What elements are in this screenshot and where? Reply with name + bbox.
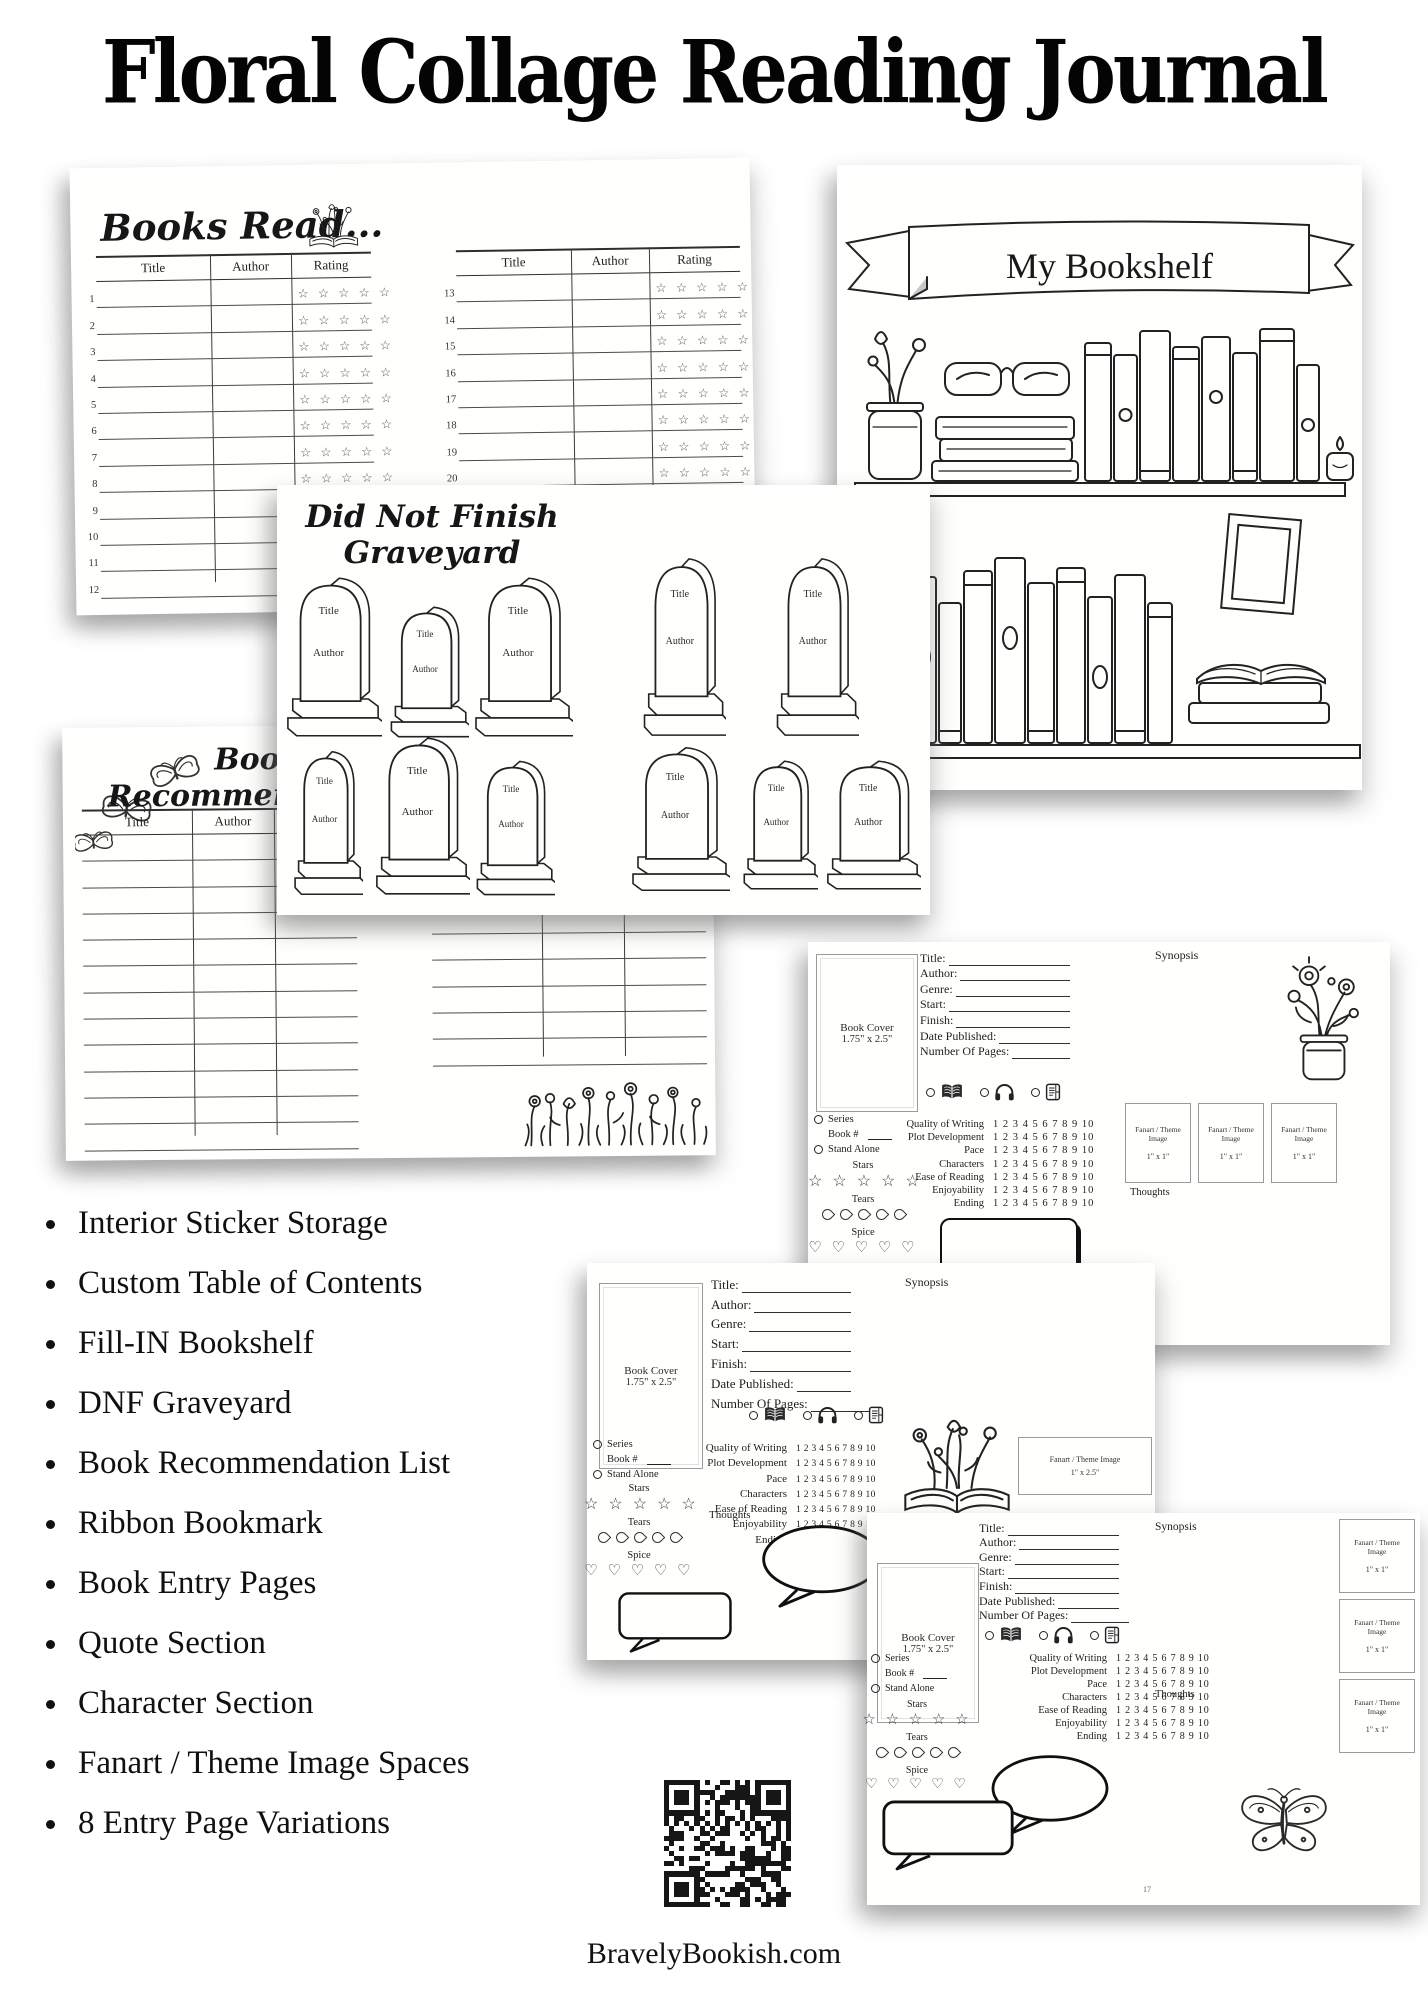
rating-label: Enjoyability [812,1185,993,1196]
qr-code [664,1780,791,1907]
column-header: Title [82,814,192,831]
speech-bubble [605,1591,745,1653]
rating-scale: 1 2 3 4 5 6 7 8 9 10 [993,1172,1094,1183]
field-line [1008,1524,1119,1536]
rating-row: Pace1 2 3 4 5 6 7 8 9 10 [615,1473,876,1488]
bookshelf-banner-label: My Bookshelf [912,245,1307,287]
entry-field: Title: [920,950,1070,966]
format-radio [926,1088,935,1097]
spice-row: ♡ ♡ ♡ ♡ ♡ [862,1776,972,1793]
entry-field: Title: [711,1273,851,1293]
rating-stars: ☆ ☆ ☆ ☆ ☆ [299,391,369,408]
thoughts-label: Thoughts [709,1509,751,1521]
rating-label: Plot Development [935,1666,1116,1677]
rating-label: Quality of Writing [935,1653,1116,1664]
field-label: Start: [979,1564,1005,1579]
rating-stars: ☆ ☆ ☆ ☆ ☆ [656,306,737,323]
field-line [742,1278,851,1293]
speech-bubble [881,1799,1015,1871]
column-header: Title [456,254,571,272]
rating-label: Pace [935,1679,1116,1690]
fanart-image-box: Fanart / Theme Image1" x 1" [1339,1519,1415,1593]
tombstone-title-label: Title [483,605,553,617]
row-number: 2 [80,321,95,332]
entry-field: Author: [711,1293,851,1313]
field-line [956,1016,1070,1028]
butterfly-art [1233,1771,1335,1871]
format-icons [985,1626,1120,1644]
fanart-label: Fanart / Theme Image [1346,1538,1409,1556]
series-label: Series [885,1653,909,1664]
book-cover-label: Book Cover [624,1365,677,1377]
entry-field: Date Published: [979,1594,1119,1609]
rating-row: Ending1 2 3 4 5 6 7 8 9 10 [812,1198,1094,1211]
table-row [84,1070,358,1099]
tombstone-icon [775,553,859,741]
stand-alone-label: Stand Alone [885,1683,934,1694]
table-row [85,1123,359,1152]
field-line [999,1031,1070,1043]
entry-field: Date Published: [920,1028,1070,1044]
stand-alone-radio [871,1684,880,1693]
rating-scale: 1 2 3 4 5 6 7 8 9 10 [796,1444,876,1454]
series-radio [593,1440,602,1449]
format-radio [1039,1631,1048,1640]
rating-scale: 1 2 3 4 5 6 7 8 9 10 [1116,1666,1210,1677]
fanart-image-box: Fanart / Theme Image1" x 2.5" [1018,1437,1152,1495]
thoughts-label: Thoughts [1130,1187,1170,1198]
table-row [432,985,706,1014]
field-label: Start: [711,1336,739,1352]
rating-label: Ease of Reading [812,1172,993,1183]
format-option [1090,1626,1120,1644]
entry-page-number: 17 [1143,1885,1151,1894]
entry-field: Author: [979,1536,1119,1551]
tombstone-author-label: Author [300,814,349,824]
table-row [84,1096,358,1125]
rating-label: Characters [812,1159,993,1170]
fanart-label: Fanart / Theme Image [1346,1698,1409,1716]
field-label: Author: [979,1535,1016,1550]
rating-scale: 1 2 3 4 5 6 7 8 9 10 [1116,1718,1210,1729]
tombstone-title-label: Title [783,589,842,600]
field-line [750,1357,851,1372]
field-line [949,953,1070,965]
rating-row: Ease of Reading1 2 3 4 5 6 7 8 9 10 [812,1172,1094,1185]
row-number: 7 [82,453,97,464]
column-header: Rating [649,251,740,268]
tear-drop-icon [595,1530,611,1546]
fanart-size: 1" x 1" [1147,1152,1170,1161]
field-label: Finish: [920,1013,953,1028]
fanart-label: Fanart / Theme Image [1131,1125,1185,1143]
rating-stars: ☆ ☆ ☆ ☆ ☆ [299,364,369,381]
format-option [1039,1626,1074,1644]
table-row [433,1011,707,1040]
field-line [754,1297,851,1312]
row-number: 14 [440,315,455,326]
field-line [1012,1047,1070,1059]
format-icons [749,1406,884,1424]
format-option [854,1406,884,1424]
rating-scale: 1 2 3 4 5 6 7 8 9 10 [993,1119,1094,1130]
graveyard-title-line1: Did Not Finish [277,499,587,535]
column-header: Author [571,252,649,269]
row-number: 11 [84,558,99,569]
entry-field: Date Published: [711,1372,851,1392]
field-label: Date Published: [979,1594,1055,1609]
tear-drop-icon [945,1745,961,1761]
ebook-icon [1104,1626,1120,1644]
rating-stars: ☆ ☆ ☆ ☆ ☆ [656,332,737,349]
entry-field: Genre: [920,981,1070,997]
entry-fields: Title:Author:Genre:Start:Finish:Date Pub… [920,950,1070,1059]
spice-label: Spice [808,1227,918,1238]
rating-label: Quality of Writing [812,1119,993,1130]
field-line [797,1377,851,1392]
format-option [926,1083,964,1101]
field-label: Genre: [711,1316,746,1332]
entry-art [1260,944,1386,1084]
tear-drop-icon [909,1745,925,1761]
feature-item: Character Section [38,1686,598,1721]
flower-bouquet-icon [1260,944,1386,1084]
speech-bubble-icon [881,1799,1015,1871]
field-label: Genre: [920,982,953,997]
entry-field: Start: [711,1332,851,1352]
rating-label: Pace [615,1473,796,1485]
field-line [960,969,1070,981]
audiobook-icon [1053,1626,1074,1644]
fanart-size: 1" x 1" [1366,1645,1389,1654]
fanart-size: 1" x 2.5" [1071,1468,1100,1477]
field-label: Finish: [711,1356,747,1372]
format-radio [749,1411,758,1420]
tear-drop-icon [873,1745,889,1761]
table-row [83,965,357,994]
tombstone-title-label: Title [300,776,349,786]
feature-item: Ribbon Bookmark [38,1506,598,1541]
fanart-label: Fanart / Theme Image [1204,1125,1258,1143]
tombstone-author-label: Author [384,806,451,818]
format-icons [926,1083,1061,1101]
fanart-size: 1" x 1" [1366,1725,1389,1734]
rating-label: Plot Development [615,1457,796,1469]
physical-book-icon [940,1083,964,1101]
row-number: 17 [441,394,456,405]
format-option [980,1083,1015,1101]
rating-row: Enjoyability1 2 3 4 5 6 7 8 9 10 [935,1718,1210,1731]
field-line [742,1337,851,1352]
qr-module [786,1902,791,1907]
feature-item: 8 Entry Page Variations [38,1806,598,1841]
tombstone-title-label: Title [650,589,709,600]
fanart-size: 1" x 1" [1220,1152,1243,1161]
rating-label: Enjoyability [935,1718,1116,1729]
spice-label: Spice [862,1765,972,1776]
feature-list: Interior Sticker StorageCustom Table of … [38,1206,598,1866]
tombstone-title-label: Title [640,772,710,783]
rating-row: Ending1 2 3 4 5 6 7 8 9 10 [935,1731,1210,1744]
thoughts-label: Thoughts [1155,1689,1195,1700]
entry-field: Start: [920,997,1070,1013]
field-line [949,1000,1070,1012]
row-number: 16 [441,368,456,379]
table-row [84,1044,358,1073]
fanart-label: Fanart / Theme Image [1277,1125,1331,1143]
tombstone-author-label: Author [483,647,553,659]
audiobook-icon [817,1406,838,1424]
table-row [84,1017,358,1046]
ratings-block: Quality of Writing1 2 3 4 5 6 7 8 9 10Pl… [812,1119,1094,1211]
entry-fields: Title:Author:Genre:Start:Finish:Date Pub… [979,1521,1119,1623]
field-line [1071,1612,1129,1624]
table-row [432,959,706,988]
entry-field: Finish: [711,1352,851,1372]
rating-stars: ☆ ☆ ☆ ☆ ☆ [655,279,736,296]
format-radio [985,1631,994,1640]
tombstone-author-label: Author [483,819,539,829]
synopsis-label: Synopsis [1155,948,1198,963]
stand-alone-radio [593,1470,602,1479]
field-line [1008,1568,1119,1580]
tombstone-title-label: Title [397,629,453,639]
format-radio [1090,1631,1099,1640]
rating-stars: ☆ ☆ ☆ ☆ ☆ [658,438,739,455]
field-line [1058,1597,1119,1609]
field-line [1015,1553,1119,1565]
tombstone: TitleAuthor [473,573,573,741]
tombstone-author-label: Author [640,810,710,821]
book-number-label: Book # [885,1668,914,1679]
rating-stars: ☆ ☆ ☆ ☆ ☆ [657,385,738,402]
format-option [1031,1083,1061,1101]
tombstone: TitleAuthor [630,743,730,895]
row-number: 1 [80,294,95,305]
rating-scale: 1 2 3 4 5 6 7 8 9 10 [993,1132,1094,1143]
rating-stars: ☆ ☆ ☆ ☆ ☆ [298,338,368,355]
format-radio [1031,1088,1040,1097]
wildflowers-icon [517,1052,710,1150]
row-number: 10 [83,532,98,543]
field-label: Number Of Pages: [920,1044,1009,1059]
tear-drop-icon [891,1745,907,1761]
rating-stars: ☆ ☆ ☆ ☆ ☆ [657,411,738,428]
rating-scale: 1 2 3 4 5 6 7 8 9 10 [796,1459,876,1469]
entry-field: Author: [920,966,1070,982]
synopsis-label: Synopsis [1155,1521,1197,1533]
field-line [1015,1582,1119,1594]
tombstone-icon [642,553,726,741]
tombstone: TitleAuthor [642,553,726,741]
fanart-image-box: Fanart / Theme Image1" x 1" [1339,1599,1415,1673]
tombstone-title-label: Title [483,784,539,794]
book-cover-size: 1.75" x 2.5" [626,1377,677,1388]
book-cover-placeholder: Book Cover1.75" x 2.5" [816,954,918,1112]
tears-row [862,1743,972,1763]
rating-scale: 1 2 3 4 5 6 7 8 9 10 [1116,1705,1210,1716]
book-cover-size: 1.75" x 2.5" [842,1034,893,1045]
tombstone: TitleAuthor [293,747,363,899]
series-radio [871,1654,880,1663]
tombstone-author-label: Author [750,817,803,827]
entry-field: Genre: [711,1313,851,1333]
tombstone: TitleAuthor [742,757,818,893]
tombstone-title-label: Title [835,783,902,794]
format-option [803,1406,838,1424]
fanart-image-box: Fanart / Theme Image1" x 1" [1198,1103,1264,1183]
feature-item: DNF Graveyard [38,1386,598,1421]
rating-label: Characters [935,1692,1116,1703]
tombstone: TitleAuthor [389,603,469,741]
rating-row: Enjoyability1 2 3 4 5 6 7 8 9 10 [812,1185,1094,1198]
format-option [985,1626,1023,1644]
tombstone: TitleAuthor [825,757,921,893]
field-label: Date Published: [711,1376,794,1392]
rating-label: Characters [615,1488,796,1500]
rating-scale: 1 2 3 4 5 6 7 8 9 10 [796,1505,876,1515]
row-number: 20 [442,473,457,484]
rating-stars: ☆ ☆ ☆ ☆ ☆ [298,311,368,328]
rating-stars: ☆ ☆ ☆ ☆ ☆ [300,443,370,460]
row-number: 15 [440,342,455,353]
entry-page-3: Book Cover1.75" x 2.5"Title:Author:Genre… [867,1513,1420,1905]
fanart-size: 1" x 1" [1366,1565,1389,1574]
spice-label: Spice [584,1550,694,1561]
field-line [1019,1539,1119,1551]
entry-field: Start: [979,1565,1119,1580]
format-radio [854,1411,863,1420]
rating-label: Pace [812,1145,993,1156]
rating-row: Ease of Reading1 2 3 4 5 6 7 8 9 10 [935,1705,1210,1718]
field-line [749,1317,851,1332]
rating-scale: 1 2 3 4 5 6 7 8 9 10 [993,1159,1094,1170]
tear-drop-icon [927,1745,943,1761]
field-label: Title: [920,951,946,966]
tombstone-title-label: Title [295,605,363,617]
field-line [956,985,1070,997]
entry-field: Finish: [920,1012,1070,1028]
physical-book-icon [763,1406,787,1424]
field-label: Number Of Pages: [979,1608,1068,1623]
wildflowers-icon [517,1052,710,1150]
tombstone: TitleAuthor [475,757,555,899]
rating-label: Plot Development [812,1132,993,1143]
tombstone: TitleAuthor [285,573,382,741]
field-label: Title: [711,1277,739,1293]
ebook-icon [1045,1083,1061,1101]
row-number: 5 [81,400,96,411]
column-header: Author [192,813,274,830]
rating-row: Pace1 2 3 4 5 6 7 8 9 10 [812,1145,1094,1158]
table-row [83,912,357,941]
feature-item: Book Entry Pages [38,1566,598,1601]
tombstone-author-label: Author [650,636,709,647]
rating-scale: 1 2 3 4 5 6 7 8 9 10 [1116,1653,1210,1664]
rating-label: Ease of Reading [615,1503,796,1515]
fanart-image-box: Fanart / Theme Image1" x 1" [1125,1103,1191,1183]
entry-field: Number Of Pages: [979,1609,1119,1624]
fanart-label: Fanart / Theme Image [1029,1455,1141,1464]
table-row [83,991,357,1020]
spice-row: ♡ ♡ ♡ ♡ ♡ [584,1561,694,1580]
rating-stars: ☆ ☆ ☆ ☆ ☆ [297,285,367,302]
entry-field: Genre: [979,1550,1119,1565]
fanart-image-box: Fanart / Theme Image1" x 1" [1271,1103,1337,1183]
rating-scale: 1 2 3 4 5 6 7 8 9 10 [796,1490,876,1500]
format-radio [980,1088,989,1097]
rating-row: Plot Development1 2 3 4 5 6 7 8 9 10 [615,1457,876,1472]
column-header: Author [210,258,291,275]
field-label: Author: [920,966,957,981]
dnf-graveyard-page: Did Not Finish Graveyard TitleAuthorTitl… [277,485,930,915]
entry-field: Finish: [979,1579,1119,1594]
rating-stars: ☆ ☆ ☆ ☆ ☆ [657,358,738,375]
table-row [432,932,706,961]
speech-bubble-icon [605,1591,745,1653]
row-number: 12 [84,585,99,596]
physical-book-icon [999,1626,1023,1644]
fanart-size: 1" x 1" [1293,1152,1316,1161]
rating-scale: 1 2 3 4 5 6 7 8 9 10 [1116,1731,1210,1742]
book-with-flowers-icon [296,190,371,253]
feature-item: Fanart / Theme Image Spaces [38,1746,598,1781]
tombstone-author-label: Author [397,664,453,674]
feature-item: Book Recommendation List [38,1446,598,1481]
synopsis-label: Synopsis [905,1275,948,1290]
rating-stars: ☆ ☆ ☆ ☆ ☆ [299,417,369,434]
row-number: 3 [80,347,95,358]
tombstone-author-label: Author [295,647,363,659]
field-label: Author: [711,1297,751,1313]
website-url: BravelyBookish.com [0,1937,1428,1971]
rating-row: Characters1 2 3 4 5 6 7 8 9 10 [615,1488,876,1503]
book-cover-label: Book Cover [901,1632,954,1644]
spice-row: ♡ ♡ ♡ ♡ ♡ [808,1238,918,1257]
row-number: 6 [82,426,97,437]
row-number: 9 [83,505,98,516]
ebook-icon [868,1406,884,1424]
rating-row: Characters1 2 3 4 5 6 7 8 9 10 [812,1159,1094,1172]
rating-row: Plot Development1 2 3 4 5 6 7 8 9 10 [812,1132,1094,1145]
tombstone: TitleAuthor [374,733,470,899]
entry-field: Number Of Pages: [920,1044,1070,1060]
row-number: 19 [442,447,457,458]
fanart-image-box: Fanart / Theme Image1" x 1" [1339,1679,1415,1753]
format-radio [803,1411,812,1420]
format-option [749,1406,787,1424]
tombstone-title-label: Title [384,765,451,777]
graveyard-title-line2: Graveyard [277,535,587,571]
rating-stars: ☆ ☆ ☆ ☆ ☆ [658,464,739,481]
book-with-flowers-icon [296,190,371,253]
fanart-label: Fanart / Theme Image [1346,1618,1409,1636]
field-label: Genre: [979,1550,1012,1565]
row-number: 13 [439,289,454,300]
row-number: 18 [442,421,457,432]
table-row [83,938,357,967]
feature-item: Fill-IN Bookshelf [38,1326,598,1361]
field-label: Title: [979,1521,1005,1536]
entry-field: Title: [979,1521,1119,1536]
rating-label: Ending [812,1198,993,1209]
rating-row: Quality of Writing1 2 3 4 5 6 7 8 9 10 [812,1119,1094,1132]
book-cover-label: Book Cover [840,1022,893,1034]
rating-scale: 1 2 3 4 5 6 7 8 9 10 [993,1198,1094,1209]
rating-label: Ending [935,1731,1116,1742]
feature-item: Quote Section [38,1626,598,1661]
field-label: Date Published: [920,1029,996,1044]
